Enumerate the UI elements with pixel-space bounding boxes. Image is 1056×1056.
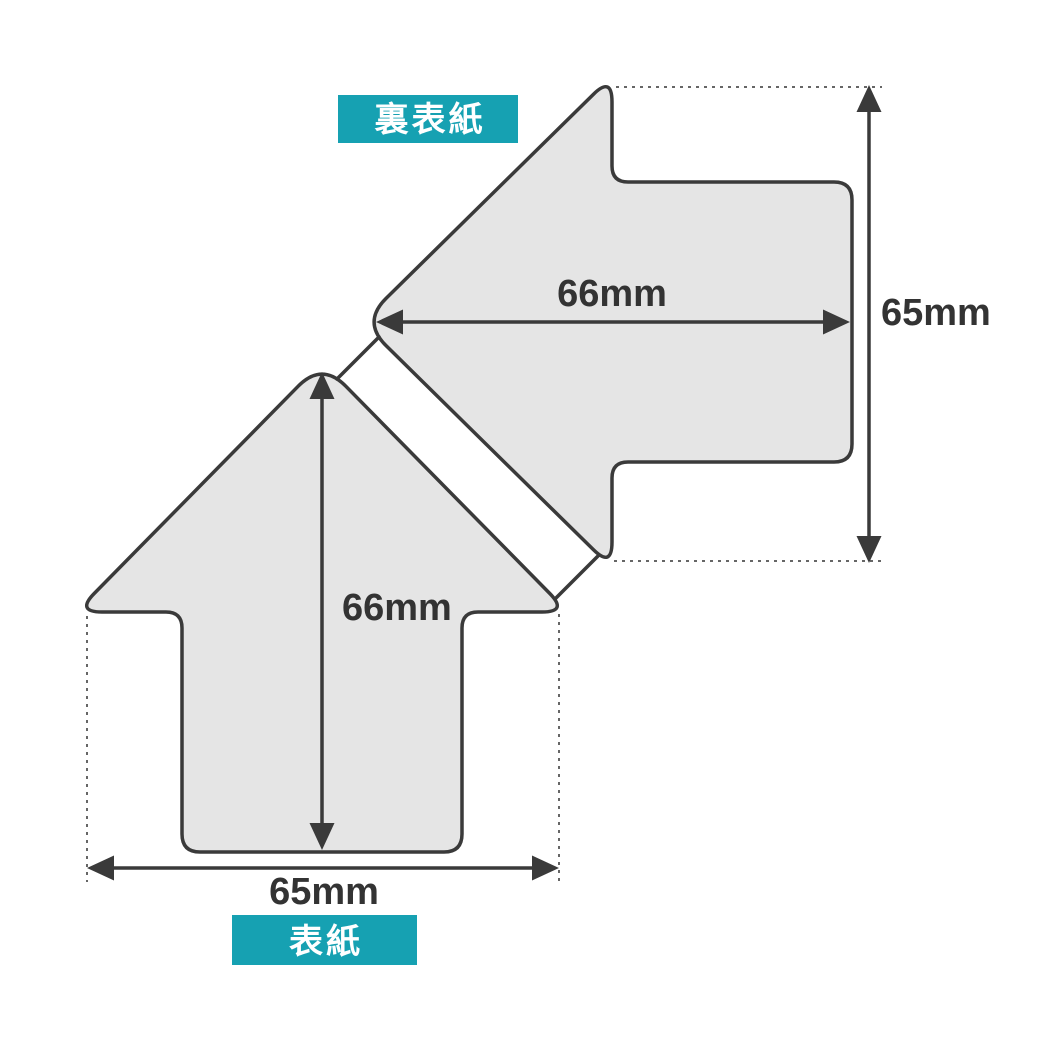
front-cover-tag-label: 表紙 [289, 923, 363, 961]
dimension-back-height: 65mm [857, 85, 991, 563]
arrowhead-down [857, 536, 882, 563]
back-cover-tag-label: 裏表紙 [375, 101, 486, 139]
arrowhead-up [857, 85, 882, 112]
diagram-stage: 66mm 65mm 66mm 65mm 裏表紙 表紙 [0, 0, 1056, 1056]
dimension-label-front-height: 66mm [342, 587, 452, 629]
diagram-canvas: 66mm 65mm 66mm 65mm 裏表紙 表紙 [0, 0, 1056, 1056]
dimension-label-back-width: 66mm [557, 273, 667, 315]
spine-end-line-bottom [556, 556, 598, 598]
front-cover-tag: 表紙 [232, 915, 417, 965]
back-cover-tag: 裏表紙 [338, 95, 518, 143]
spine-end-line-top [337, 337, 379, 379]
arrowhead-right [532, 856, 559, 881]
dimension-label-front-width: 65mm [269, 871, 379, 913]
dimension-front-width: 65mm [87, 856, 559, 914]
dimension-label-back-height: 65mm [881, 292, 991, 334]
arrowhead-left [87, 856, 114, 881]
